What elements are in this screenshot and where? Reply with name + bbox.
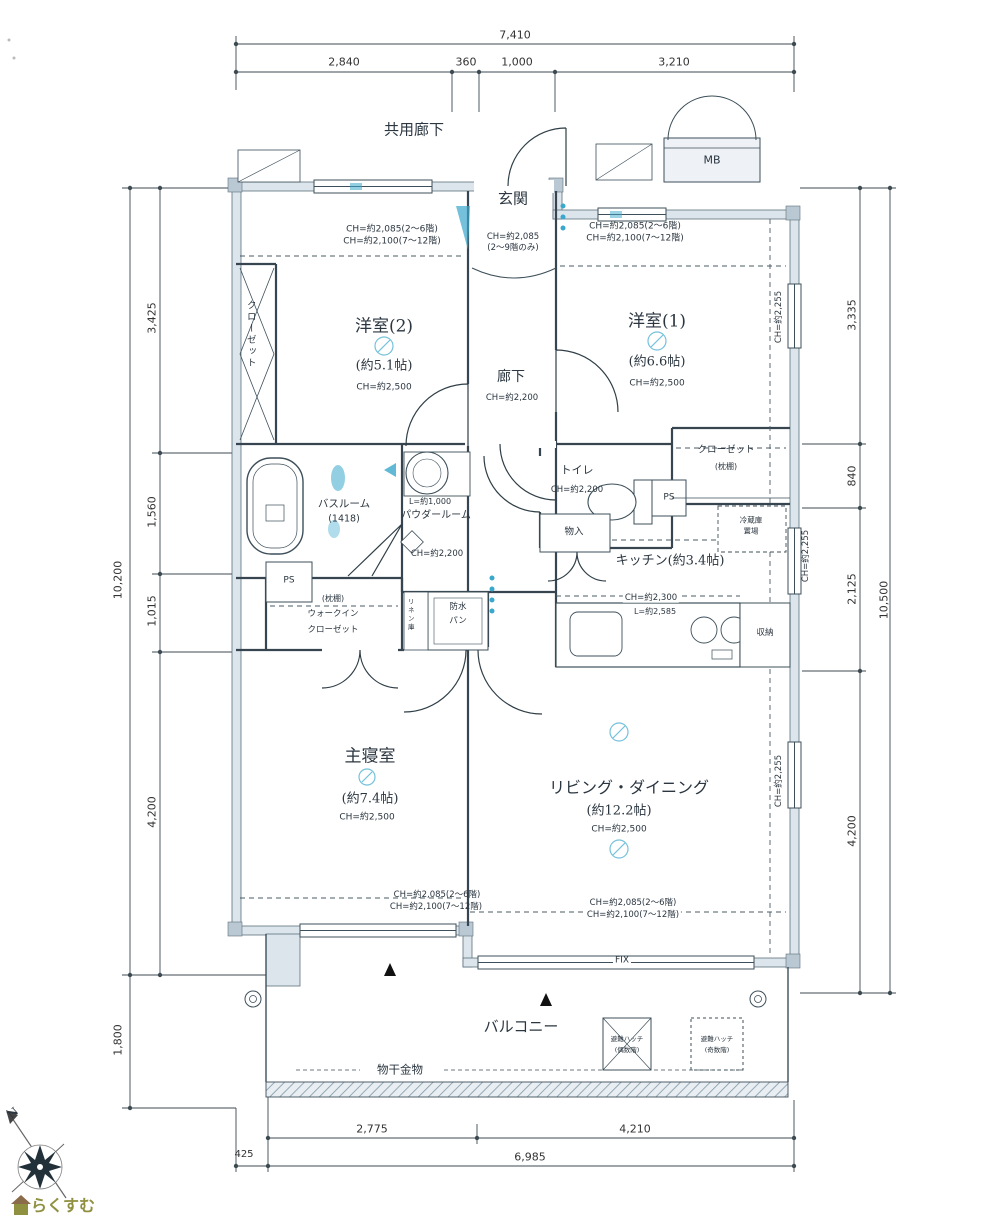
western2-label: 洋室(2) — [355, 319, 413, 336]
waterproof-pan-label-1: 防水 — [449, 603, 466, 612]
stove-burner — [691, 617, 717, 643]
logo-house-icon — [11, 1195, 31, 1215]
kitchen-label: キッチン(約3.4帖) — [616, 555, 725, 568]
ch-note-topleft-high: CH=約2,100(7〜12階) — [343, 238, 441, 247]
dim-bottom-total: 6,985 — [514, 1152, 546, 1163]
toilet-label: トイレ — [561, 465, 594, 476]
ps-left-label: PS — [283, 577, 294, 586]
drying-fixture-label: 物干金物 — [375, 1064, 425, 1076]
toilet-tank — [634, 480, 652, 524]
logo-text: らくすむ — [31, 1198, 95, 1214]
floorplan-page: 7,410 2,840 360 1,000 3,210 10,200 3,425… — [0, 0, 1008, 1226]
pantry-label: 物入 — [564, 527, 583, 537]
kitchen-sink — [570, 612, 622, 656]
fridge-label-2: 置場 — [744, 527, 759, 535]
kitchen-counter-l: L=約2,585 — [632, 608, 678, 616]
western2-ch: CH=約2,500 — [356, 384, 411, 393]
hatch-odd-note: (奇数階) — [705, 1047, 730, 1054]
powder-ch: CH=約2,200 — [411, 550, 463, 559]
ch-note-botright-high: CH=約2,100(7〜12階) — [585, 911, 681, 920]
powder-l: L=約1,000 — [409, 498, 451, 506]
ch-note-topleft-low: CH=約2,085(2〜6階) — [346, 226, 438, 235]
bath-label: バスルーム — [318, 499, 370, 510]
entrance-ch-note: (2〜9階のみ) — [487, 244, 538, 253]
ch-side-2: CH=約2,255 — [802, 530, 811, 582]
master-label: 主寝室 — [345, 749, 396, 766]
dim-top-seg-1: 2,840 — [328, 57, 360, 68]
dim-bottom-seg-1: 2,775 — [356, 1124, 388, 1135]
living-ch: CH=約2,500 — [591, 826, 646, 835]
common-corridor-label: 共用廊下 — [384, 123, 444, 138]
dim-right-seg-3: 2,125 — [847, 573, 858, 605]
compass — [6, 1110, 66, 1198]
dim-top-seg-3: 1,000 — [501, 57, 533, 68]
closet-w1-label: クローゼット — [697, 445, 754, 455]
hallway-ch: CH=約2,200 — [486, 394, 538, 403]
western1-label: 洋室(1) — [628, 314, 686, 331]
kitchen-ch: CH=約2,300 — [623, 594, 679, 603]
hatch-odd-label: 避難ハッチ — [701, 1036, 734, 1043]
exterior-walls — [232, 182, 799, 986]
hatch-even-label: 避難ハッチ — [611, 1036, 644, 1043]
dim-bottom-seg-2: 4,210 — [619, 1124, 651, 1135]
wic-label-1: ウォークイン — [307, 610, 358, 619]
wall-pillars — [228, 178, 800, 968]
master-ch: CH=約2,500 — [339, 814, 394, 823]
dim-top-total: 7,410 — [499, 30, 531, 41]
windows — [300, 180, 801, 969]
western1-size: (約6.6帖) — [629, 356, 686, 369]
dim-top-seg-2: 360 — [456, 57, 477, 68]
kitchen-storage-label: 収納 — [756, 629, 773, 638]
dim-right-total: 10,500 — [879, 581, 890, 620]
dim-right-seg-1: 3,335 — [847, 299, 858, 331]
dim-left-total: 10,200 — [113, 561, 124, 600]
bath-size: (1418) — [328, 514, 360, 524]
master-size: (約7.4帖) — [342, 793, 399, 806]
dim-left-seg-3: 1,015 — [147, 595, 158, 627]
ch-note-botleft-low: CH=約2,085(2〜6階) — [394, 891, 481, 900]
fix-window-label: FIX — [613, 957, 631, 966]
western2-size: (約5.1帖) — [356, 360, 413, 373]
entrance-label: 玄関 — [498, 192, 528, 207]
dim-left-seg-2: 1,560 — [147, 496, 158, 528]
wic-label-2: クローゼット — [307, 626, 358, 635]
western1-ch: CH=約2,500 — [629, 380, 684, 389]
living-size: (約12.2帖) — [586, 805, 651, 818]
hatch-box-odd — [691, 1018, 743, 1070]
ps-right-label: PS — [663, 494, 674, 503]
dim-left-bottom: 1,800 — [113, 1024, 124, 1056]
fridge-label-1: 冷蔵庫 — [740, 516, 763, 524]
dim-right-seg-2: 840 — [847, 466, 858, 487]
dim-bottom-offset: 425 — [234, 1150, 253, 1160]
closet-w2-label: クローゼット — [245, 300, 255, 369]
mb-label: MB — [703, 155, 720, 166]
ch-note-botright-low: CH=約2,085(2〜6階) — [588, 899, 679, 908]
dim-right-seg-4: 4,200 — [847, 815, 858, 847]
powder-label: パウダールーム — [401, 511, 471, 521]
balcony-label: バルコニー — [484, 1020, 559, 1035]
ceiling-dashed-lines — [240, 219, 786, 954]
ch-note-topright-high: CH=約2,100(7〜12階) — [586, 235, 684, 244]
linen-label: リネン庫 — [407, 598, 414, 632]
ch-side-1: CH=約2,255 — [775, 291, 784, 343]
waterproof-pan-label-2: パン — [449, 617, 466, 626]
closet-w1-note: (枕棚) — [715, 463, 737, 471]
living-label: リビング・ダイニング — [549, 780, 709, 796]
scan-specks — [8, 39, 16, 60]
ch-note-topright-low: CH=約2,085(2〜6階) — [589, 223, 681, 232]
hatch-even-note: (偶数階) — [615, 1047, 640, 1054]
ch-note-botleft-high: CH=約2,100(7〜12階) — [390, 903, 482, 912]
ch-side-3: CH=約2,255 — [775, 755, 784, 807]
drain — [245, 991, 261, 1007]
dim-left-seg-4: 4,200 — [147, 796, 158, 828]
dim-left-seg-1: 3,425 — [147, 302, 158, 334]
hallway-label: 廊下 — [497, 370, 525, 384]
wic-note: (枕棚) — [322, 595, 344, 603]
toilet-ch: CH=約2,200 — [551, 486, 603, 495]
drain — [750, 991, 766, 1007]
dim-top-seg-4: 3,210 — [658, 57, 690, 68]
entrance-ch: CH=約2,085 — [487, 233, 539, 242]
